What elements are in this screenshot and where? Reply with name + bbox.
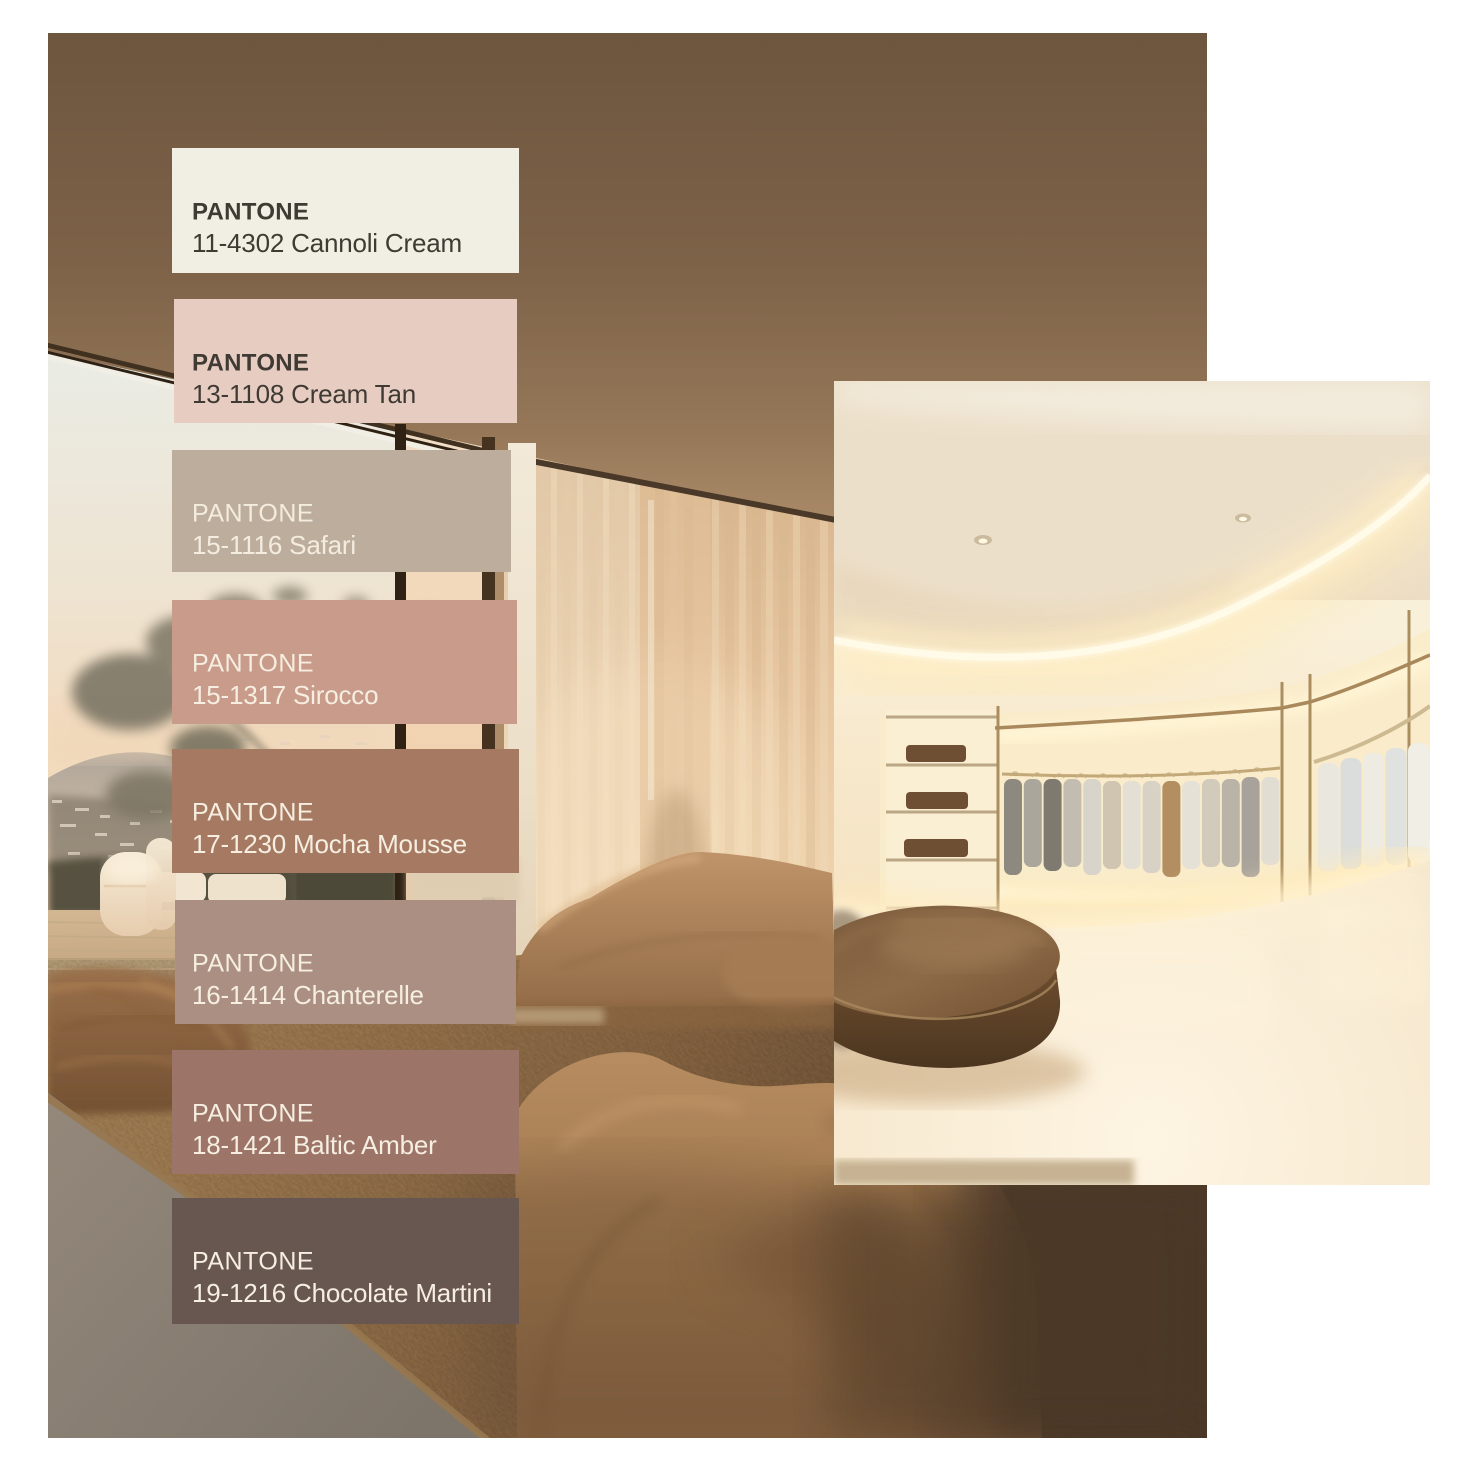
svg-text:PANTONE: PANTONE (192, 350, 309, 377)
svg-text:PANTONE: PANTONE (192, 650, 314, 678)
svg-text:PANTONE: PANTONE (192, 950, 314, 978)
svg-text:17-1230 Mocha Mousse: 17-1230 Mocha Mousse (192, 829, 467, 859)
svg-text:PANTONE: PANTONE (192, 1248, 314, 1276)
svg-text:PANTONE: PANTONE (192, 500, 314, 528)
svg-text:15-1116 Safari: 15-1116 Safari (192, 530, 356, 560)
svg-text:11-4302 Cannoli Cream: 11-4302 Cannoli Cream (192, 228, 462, 258)
svg-text:18-1421 Baltic Amber: 18-1421 Baltic Amber (192, 1130, 437, 1160)
svg-text:PANTONE: PANTONE (192, 799, 314, 827)
svg-text:19-1216 Chocolate Martini: 19-1216 Chocolate Martini (192, 1278, 492, 1308)
svg-text:16-1414 Chanterelle: 16-1414 Chanterelle (192, 980, 424, 1010)
svg-text:PANTONE: PANTONE (192, 1100, 314, 1128)
svg-text:15-1317 Sirocco: 15-1317 Sirocco (192, 680, 378, 710)
svg-text:PANTONE: PANTONE (192, 199, 309, 226)
svg-text:13-1108 Cream Tan: 13-1108 Cream Tan (192, 379, 416, 409)
